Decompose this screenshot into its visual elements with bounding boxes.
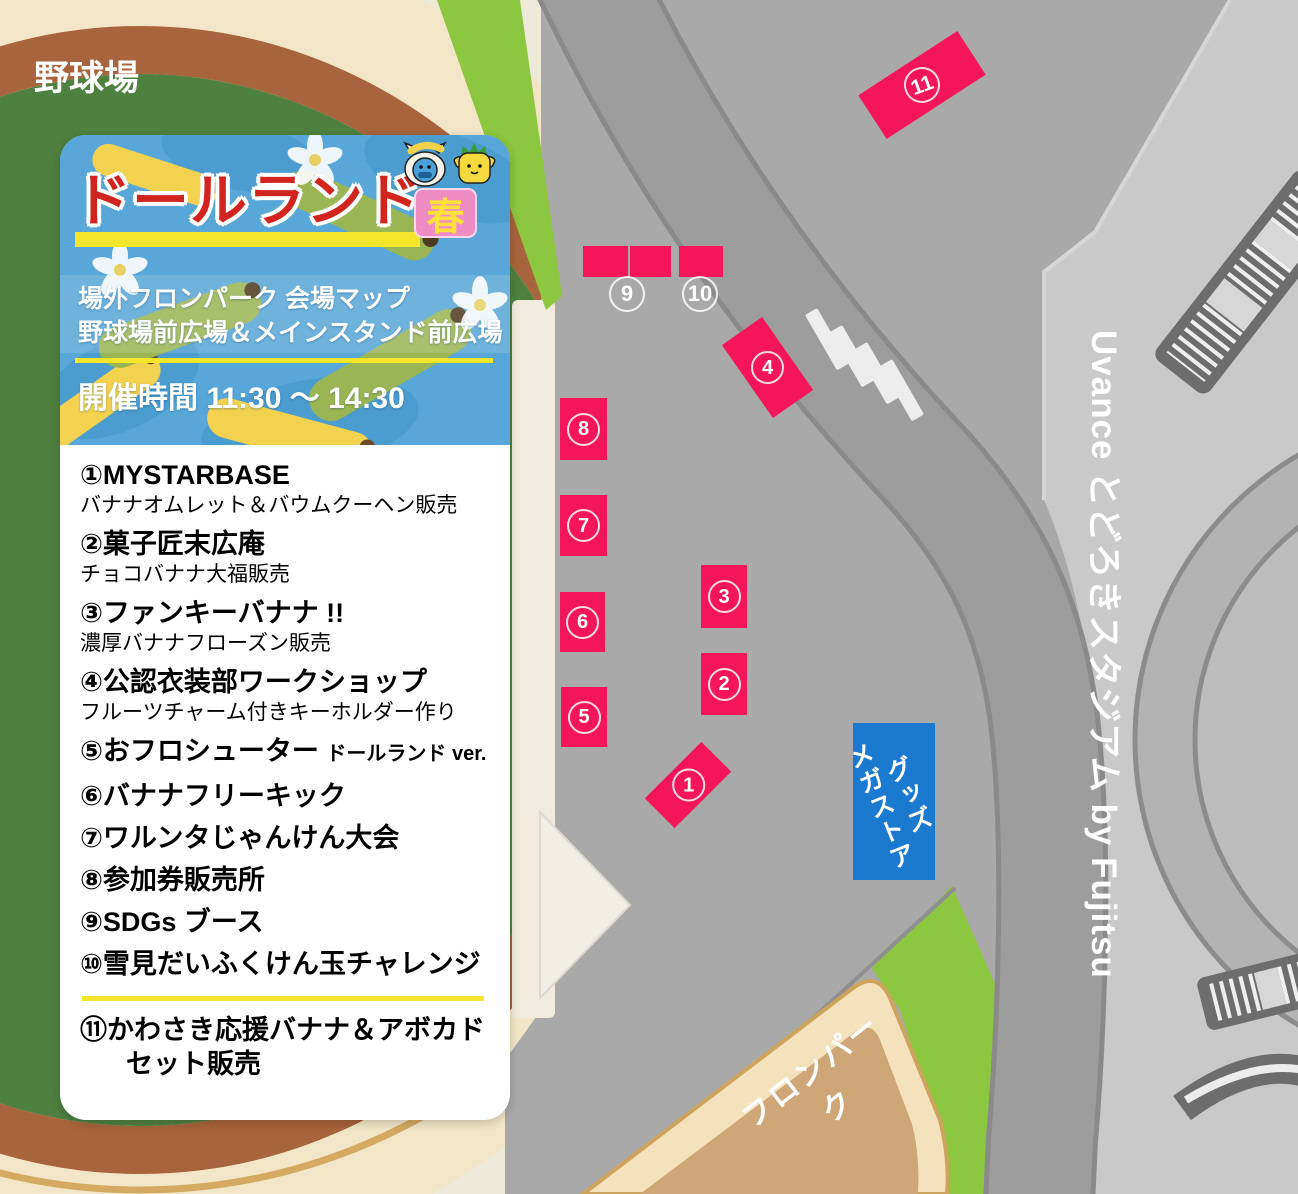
mascot-characters: [403, 139, 498, 189]
booth-2-number: 2: [708, 668, 741, 701]
list-item: ①MYSTARBASEバナナオムレット＆バウムクーヘン販売: [80, 458, 492, 519]
booth-10-stall: [679, 246, 723, 277]
goods-megastore-label: グッズ メガストア: [841, 728, 947, 876]
list-item-desc: フルーツチャーム付きキーホルダー作り: [80, 699, 492, 726]
subtitle-line2: 野球場前広場＆メインスタンド前広場: [78, 313, 503, 349]
list-item: ⑧参加券販売所: [80, 863, 492, 897]
list-item-title: ⑥バナナフリーキック: [80, 779, 492, 813]
list-item: ⑩雪見だいふくけん玉チャレンジ: [80, 947, 492, 981]
list-item-title: ①MYSTARBASE: [80, 458, 492, 492]
event-time: 開催時間 11:30 ～ 14:30: [78, 373, 405, 417]
booth-8: 8: [560, 398, 607, 460]
baseball-field-label: 野球場: [34, 50, 139, 101]
booth-list: ①MYSTARBASEバナナオムレット＆バウムクーヘン販売 ②菓子匠末広庵チョコ…: [60, 445, 510, 1081]
list-item: ③ファンキーバナナ !!濃厚バナナフローズン販売: [80, 596, 492, 657]
booth-3: 3: [701, 565, 747, 628]
list-item-title: ⑩雪見だいふくけん玉チャレンジ: [80, 947, 492, 981]
venue-map: 野球場 Uvance とどろきスタジアム by Fujitsu フロンパーク 1…: [0, 0, 1298, 1194]
booth-10-label: 10: [682, 276, 718, 312]
list-item-title: ④公認衣装部ワークショップ: [80, 665, 492, 699]
booth-6-number: 6: [566, 606, 599, 639]
booth-7: 7: [560, 495, 607, 556]
list-item-title: ⑧参加券販売所: [80, 863, 492, 897]
list-item: ⑨SDGs ブース: [80, 905, 492, 939]
booth-6: 6: [560, 592, 605, 652]
booth-3-number: 3: [708, 580, 741, 613]
list-item-suffix: ドールランド ver.: [326, 743, 486, 765]
goods-megastore: グッズ メガストア: [853, 723, 935, 880]
list-item-title: ⑤おフロシューター: [80, 736, 319, 766]
stadium-name-label: Uvance とどろきスタジアム by Fujitsu: [1081, 330, 1132, 979]
booth-7-number: 7: [567, 509, 600, 542]
booth-5: 5: [561, 687, 607, 747]
booth-2: 2: [701, 653, 747, 715]
list-item: ④公認衣装部ワークショップフルーツチャーム付きキーホルダー作り: [80, 665, 492, 726]
list-divider: [82, 996, 484, 1001]
list-item-title: ②菓子匠末広庵: [80, 527, 492, 561]
list-item: ⑥バナナフリーキック: [80, 779, 492, 813]
booth-4-number: 4: [751, 351, 784, 384]
list-item: ⑤おフロシューター ドールランド ver.: [80, 734, 492, 771]
event-banner: ドールランド 春: [60, 135, 510, 445]
booth-9-label: 9: [609, 276, 645, 312]
header-divider: [75, 358, 493, 363]
list-item-desc: バナナオムレット＆バウムクーヘン販売: [80, 492, 492, 519]
list-item-title: ③ファンキーバナナ !!: [80, 596, 492, 630]
booth-11-number: 11: [899, 62, 945, 108]
list-item-title-line2: セット販売: [80, 1047, 492, 1081]
list-item-desc: 濃厚バナナフローズン販売: [80, 630, 492, 657]
title-underline: [75, 232, 420, 247]
event-info-card: ドールランド 春: [60, 135, 510, 1120]
booth-9-stall-a: [583, 246, 628, 277]
event-title: ドールランド: [74, 155, 422, 237]
list-item-title: ⑨SDGs ブース: [80, 905, 492, 939]
list-item: ⑦ワルンタじゃんけん大会: [80, 821, 492, 855]
list-item-title: ⑦ワルンタじゃんけん大会: [80, 821, 492, 855]
list-item-extra: ⑪かわさき応援バナナ＆アボカド セット販売: [80, 1013, 492, 1081]
list-item-title: ⑪かわさき応援バナナ＆アボカド: [80, 1013, 492, 1047]
list-item-desc: チョコバナナ大福販売: [80, 561, 492, 588]
booth-1-number: 1: [672, 769, 705, 802]
subtitle-line1: 場外フロンパーク 会場マップ: [78, 279, 410, 315]
booth-8-number: 8: [567, 413, 600, 446]
list-item: ②菓子匠末広庵チョコバナナ大福販売: [80, 527, 492, 588]
season-badge: 春: [414, 188, 477, 238]
booth-9-stall-b: [630, 246, 671, 277]
booth-5-number: 5: [568, 701, 601, 734]
